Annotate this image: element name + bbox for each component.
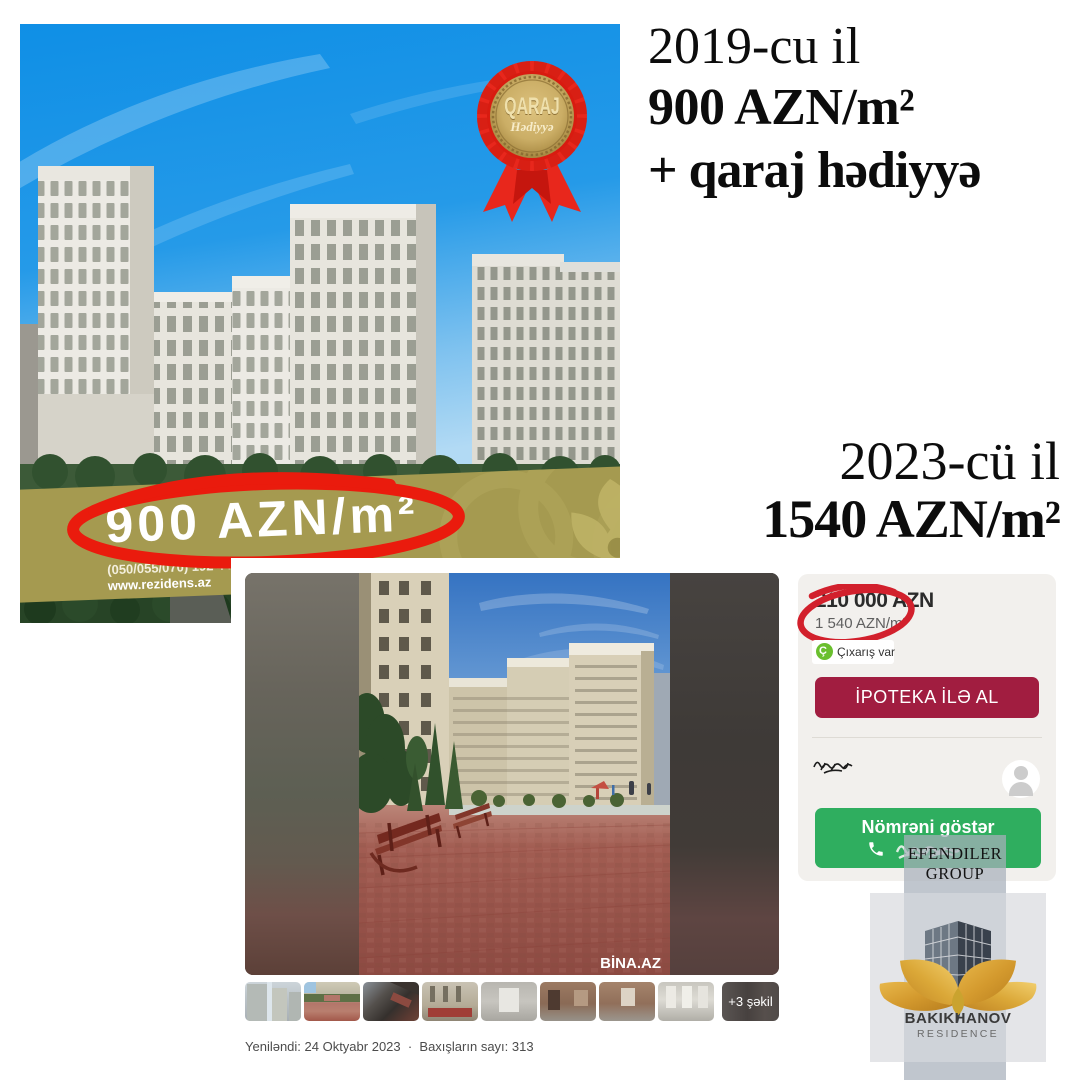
svg-text:BAKIKHANOV: BAKIKHANOV <box>905 1010 1012 1027</box>
svg-text:BİNA.AZ: BİNA.AZ <box>600 955 661 972</box>
svg-text:Hədiyyə: Hədiyyə <box>509 119 554 134</box>
svg-text:RESIDENCE: RESIDENCE <box>917 1028 999 1040</box>
svg-text:QARAJ: QARAJ <box>504 94 559 120</box>
